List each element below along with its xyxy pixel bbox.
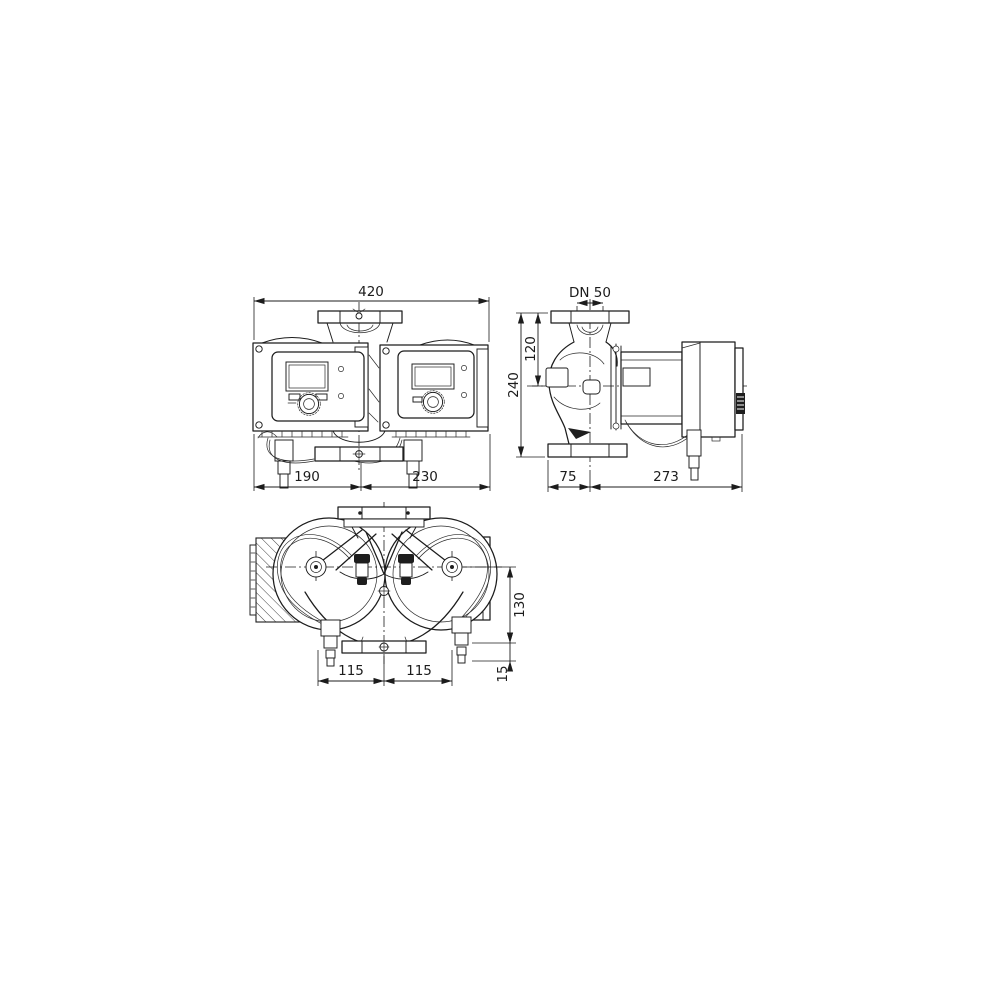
dim-foot-pitch: 115 115 bbox=[318, 650, 452, 686]
plan-bottom-flange bbox=[342, 641, 426, 653]
left-volute-top bbox=[262, 338, 322, 344]
right-volute-top bbox=[420, 340, 474, 345]
terminal-nubs bbox=[258, 431, 470, 437]
dim-center-height: 120 bbox=[523, 313, 546, 386]
dim-base-offset: 15 bbox=[472, 634, 516, 683]
center-casting bbox=[369, 355, 379, 422]
vent-screw bbox=[356, 313, 362, 319]
motor-body bbox=[621, 352, 682, 424]
side-view: DN 50 240 120 bbox=[506, 285, 750, 492]
left-cable-gland bbox=[258, 432, 293, 488]
bearing-plug bbox=[583, 380, 600, 394]
dim-190-label: 190 bbox=[294, 469, 320, 485]
front-neck bbox=[327, 323, 393, 342]
dim-75-label: 75 bbox=[559, 469, 576, 485]
dim-115-left-label: 115 bbox=[338, 663, 364, 679]
electronics-box bbox=[682, 342, 745, 441]
plan-left-foot bbox=[321, 620, 340, 666]
dim-depths: 75 273 bbox=[548, 434, 742, 492]
side-volute bbox=[546, 342, 617, 444]
technical-drawing-page: 420 bbox=[0, 0, 1000, 1000]
front-top-flange bbox=[318, 309, 402, 323]
side-bottom-flange bbox=[548, 444, 627, 457]
right-control-module bbox=[398, 351, 474, 418]
front-view: 420 bbox=[253, 284, 490, 491]
pump-dimensional-drawing: 420 bbox=[0, 0, 1000, 1000]
dim-120-label: 120 bbox=[523, 336, 539, 362]
dim-total-height: 240 bbox=[506, 313, 548, 457]
pressure-port-boss bbox=[546, 368, 568, 387]
dim-15-label: 15 bbox=[495, 665, 511, 682]
plug-connector bbox=[736, 393, 745, 414]
motor-clamp bbox=[611, 344, 621, 430]
dim-420-label: 420 bbox=[358, 284, 384, 300]
dim-240-label: 240 bbox=[506, 372, 522, 398]
dim-130-label: 130 bbox=[512, 592, 528, 618]
left-control-module bbox=[272, 352, 364, 421]
dim-273-label: 273 bbox=[653, 469, 679, 485]
side-top-flange bbox=[551, 311, 629, 323]
dim-230-label: 230 bbox=[412, 469, 438, 485]
dim-115-right-label: 115 bbox=[406, 663, 432, 679]
dim-dn50-label: DN 50 bbox=[569, 285, 611, 301]
plan-right-foot bbox=[452, 617, 471, 663]
front-bottom-flange bbox=[315, 447, 403, 461]
plan-view: 130 15 115 115 bbox=[250, 502, 528, 686]
